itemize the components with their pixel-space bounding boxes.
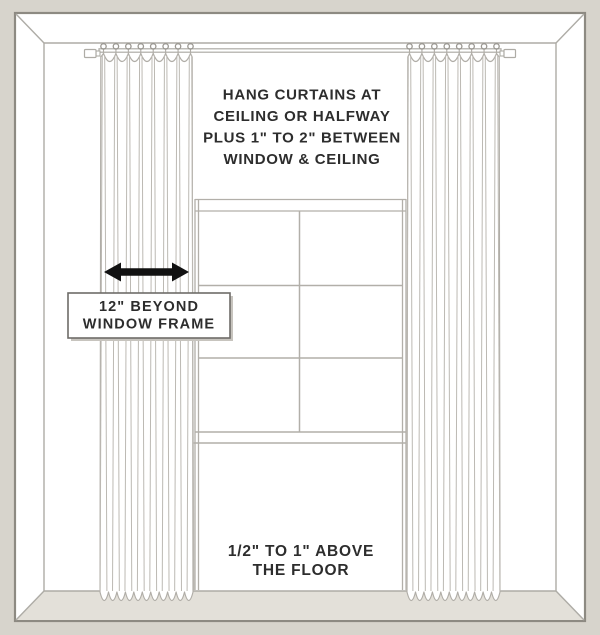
width-label-line-1: 12" BEYOND [99, 299, 199, 315]
right-finial [504, 50, 516, 58]
curtain-hanging-diagram: 12" BEYOND WINDOW FRAME HANG CURTAINS AT… [0, 0, 600, 635]
floor-note-line-1: 1/2" TO 1" ABOVE [228, 543, 374, 560]
diagram-canvas: 12" BEYOND WINDOW FRAME HANG CURTAINS AT… [0, 0, 600, 635]
hang-note-line-2: CEILING OR HALFWAY [213, 108, 390, 125]
hang-note-line-4: WINDOW & CEILING [223, 151, 380, 168]
right-curtain-panel [406, 44, 500, 601]
width-label-box: 12" BEYOND WINDOW FRAME [68, 293, 233, 341]
hang-note-line-1: HANG CURTAINS AT [223, 87, 381, 104]
width-label-line-2: WINDOW FRAME [83, 317, 215, 333]
floor-note-line-2: THE FLOOR [253, 562, 350, 579]
left-finial [85, 50, 97, 58]
rod-bar [99, 49, 501, 52]
hang-note-line-3: PLUS 1" TO 2" BETWEEN [203, 130, 401, 147]
